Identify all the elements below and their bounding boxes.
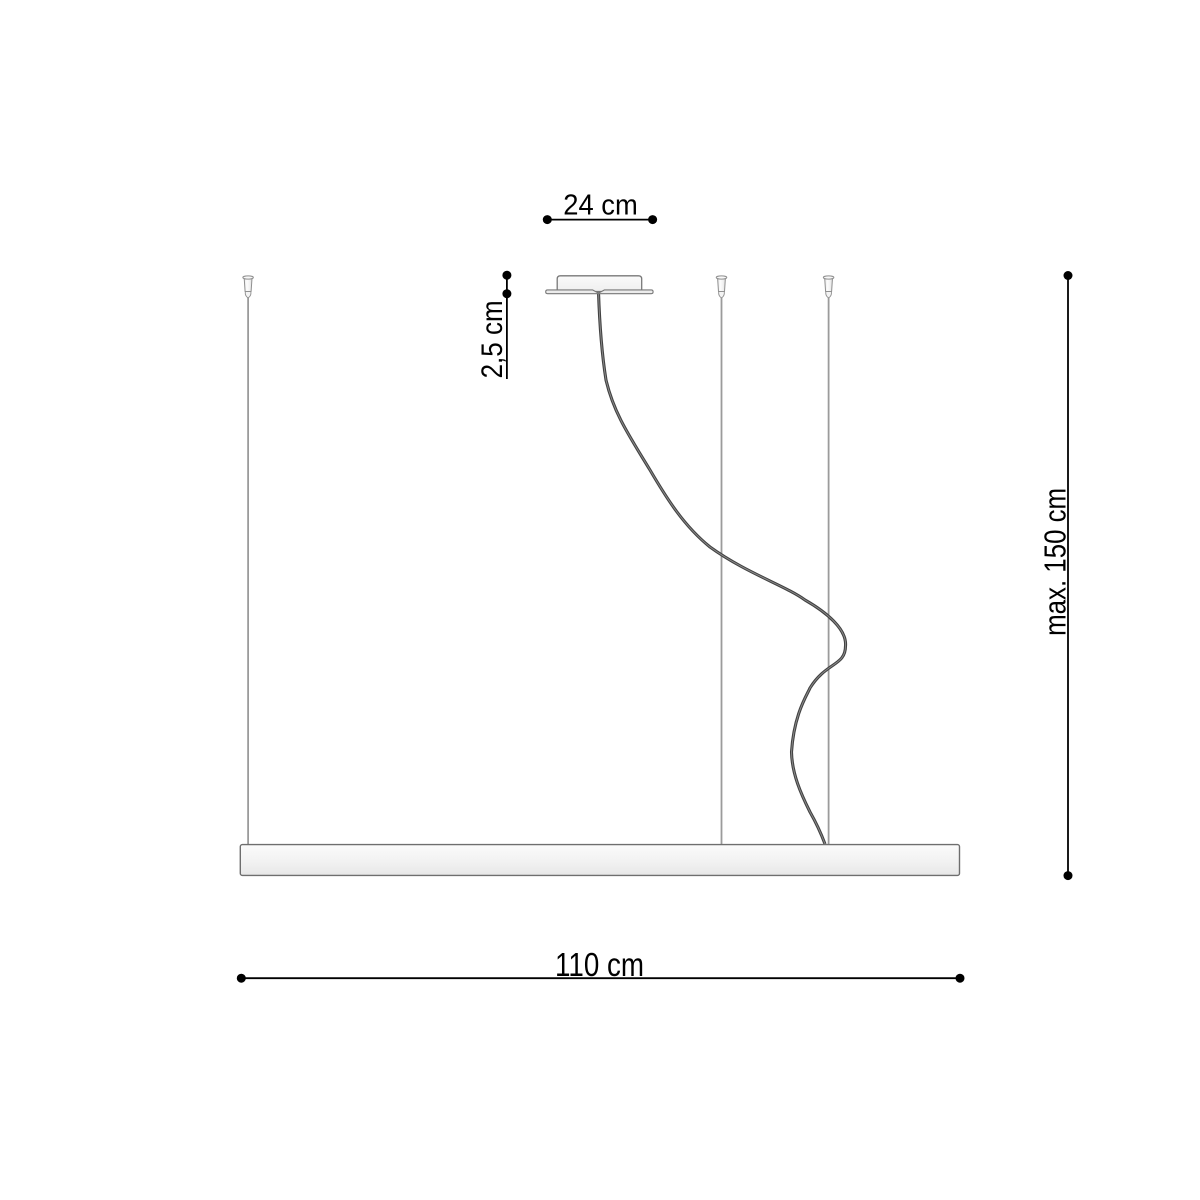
- svg-text:110 cm: 110 cm: [555, 946, 644, 983]
- svg-text:2,5 cm: 2,5 cm: [476, 300, 509, 378]
- svg-text:max. 150 cm: max. 150 cm: [1039, 488, 1073, 636]
- svg-text:24 cm: 24 cm: [563, 190, 638, 222]
